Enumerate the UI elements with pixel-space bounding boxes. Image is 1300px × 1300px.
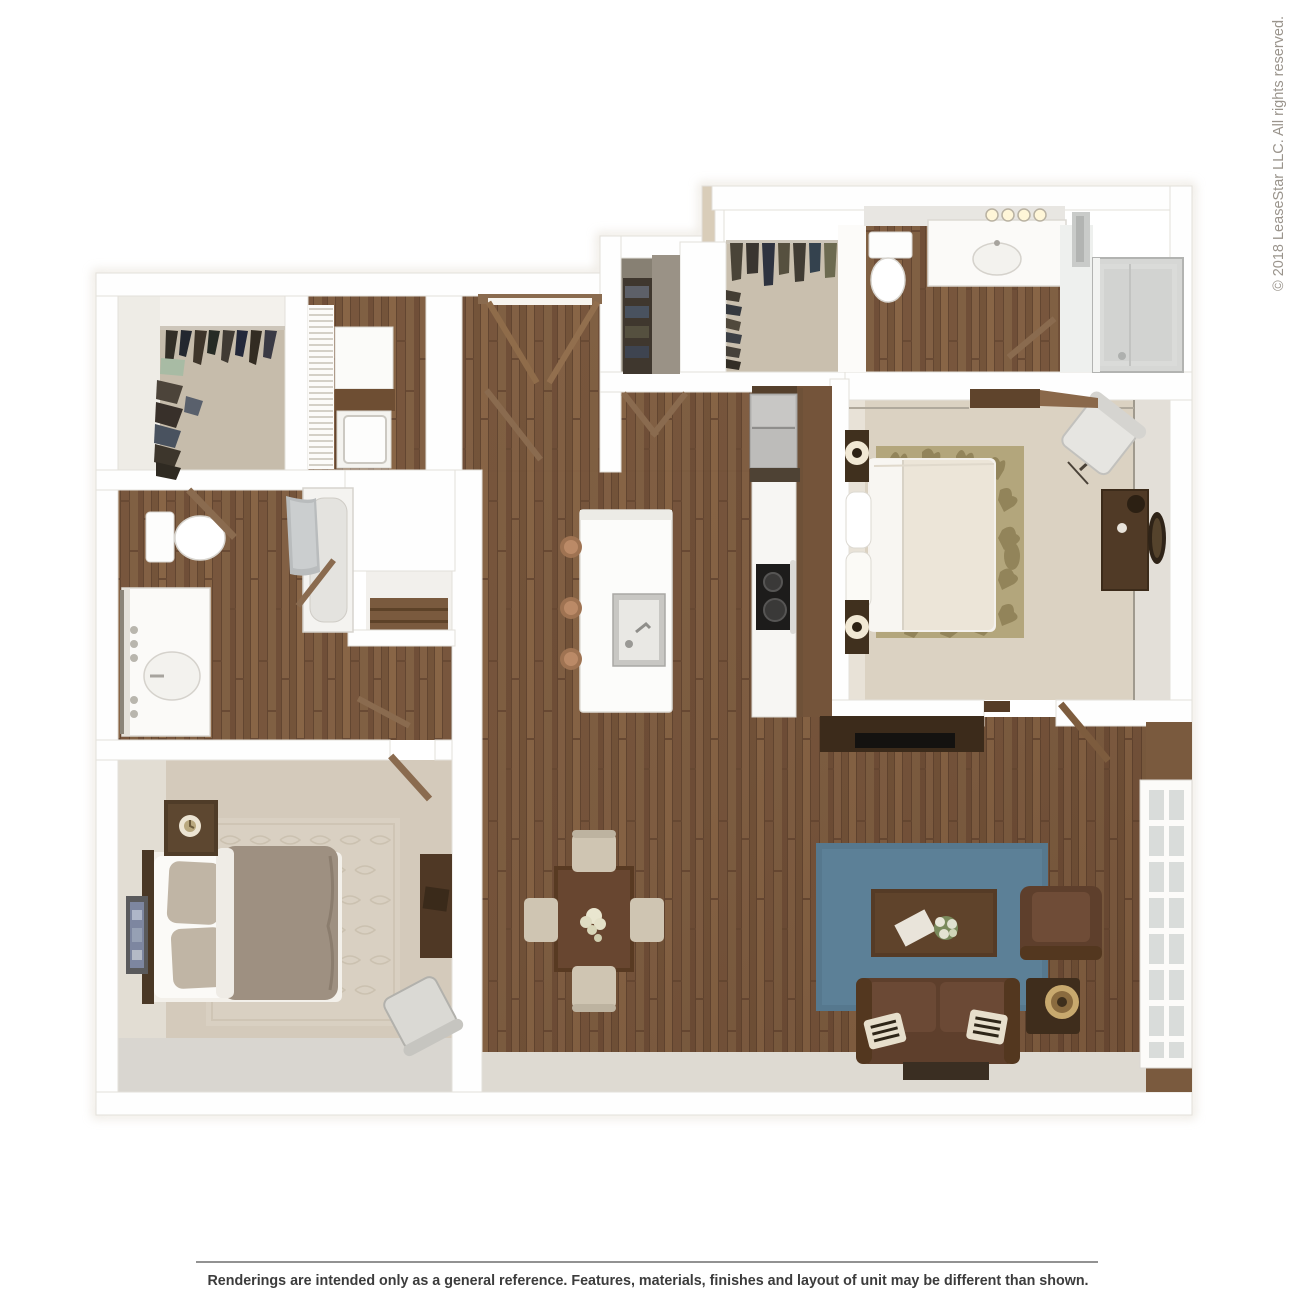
svg-text:© 2018 LeaseStar LLC. All righ: © 2018 LeaseStar LLC. All rights reserve…: [1271, 16, 1287, 291]
svg-text:Renderings are intended only a: Renderings are intended only as a genera…: [207, 1273, 1088, 1289]
